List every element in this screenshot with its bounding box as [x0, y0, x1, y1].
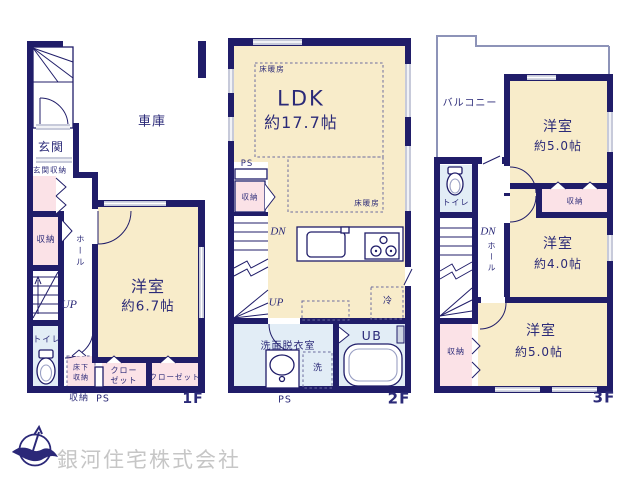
garage-label: 車庫	[138, 116, 166, 129]
washer-label: 洗	[313, 365, 323, 374]
dn-label-2f: DN	[270, 227, 285, 238]
closet2-label: クローゼット	[150, 373, 201, 381]
ps-top-label-2f: PS	[241, 160, 254, 169]
room-mid-label-3f: 洋室	[543, 237, 573, 251]
floor-heating-bottom-label: 床暖房	[354, 199, 380, 207]
ps-bottom-label-2f: PS	[278, 395, 292, 405]
closet1-label-1: クロー	[111, 367, 138, 375]
storage-left-label-3f: 収納	[447, 348, 465, 356]
floor-tag-2f: 2F	[388, 392, 411, 407]
underfloor-storage-label-1: 床下	[73, 365, 89, 372]
entrance-label: 玄関	[38, 141, 64, 153]
floor-tag-1f: 1F	[182, 392, 203, 406]
balcony-label: バルコニー	[443, 99, 498, 109]
toilet-icon	[447, 167, 463, 195]
room-bottom-label-3f: 洋室	[526, 324, 556, 338]
room-label-1f: 洋室	[131, 279, 165, 295]
up-label-1f: UP	[61, 298, 77, 310]
storage-label-2f: 収納	[242, 193, 259, 201]
kitchen-sink-icon	[307, 227, 349, 257]
washroom-label: 洗面脱衣室	[261, 342, 316, 352]
room-top-size-3f: 約5.0帖	[534, 140, 582, 152]
hall-label-1f: ホール	[75, 235, 84, 270]
floor-tag-3f: 3F	[593, 391, 616, 406]
up-label-2f: UP	[269, 298, 284, 309]
washbasin-icon	[266, 350, 299, 388]
storage-below-label-1f: 収納	[69, 395, 89, 404]
entrance-storage-label: 玄関収納	[33, 166, 67, 174]
floor-heating-top-label: 床暖房	[259, 65, 285, 73]
room-mid-size-3f: 約4.0帖	[534, 258, 582, 270]
storage-top-label-3f: 収納	[567, 197, 584, 205]
floorplan-canvas: 車庫 玄関 玄関収納 収納 ホール UP トイレ 床下 収納 収納 PS クロー…	[0, 0, 640, 480]
north-compass-icon	[10, 423, 60, 473]
storage-label-1f: 収納	[36, 236, 55, 245]
room-top-label-3f: 洋室	[543, 120, 573, 134]
toilet-label-1f: トイレ	[33, 336, 62, 345]
unit-bath-label: UB	[362, 330, 383, 343]
underfloor-storage-label-2: 収納	[73, 375, 89, 382]
fridge-label: 冷	[383, 298, 393, 307]
room-size-1f: 約6.7帖	[121, 300, 174, 314]
company-name: 銀河住宅株式会社	[57, 444, 241, 474]
room-bottom-size-3f: 約5.0帖	[515, 346, 563, 358]
ps-label-1f: PS	[96, 394, 110, 404]
ldk-label: LDK	[277, 89, 325, 110]
toilet-label-3f: トイレ	[443, 199, 470, 207]
hall-label-3f: ホール	[487, 242, 495, 275]
plan-3f-graphics	[434, 36, 613, 393]
dn-label-3f: DN	[480, 227, 495, 238]
toilet-icon	[37, 350, 55, 384]
ldk-size-label: 約17.7帖	[264, 115, 338, 131]
kitchen-counter	[297, 227, 403, 261]
stove-icon	[365, 233, 399, 259]
closet1-label-2: ゼット	[111, 377, 138, 385]
